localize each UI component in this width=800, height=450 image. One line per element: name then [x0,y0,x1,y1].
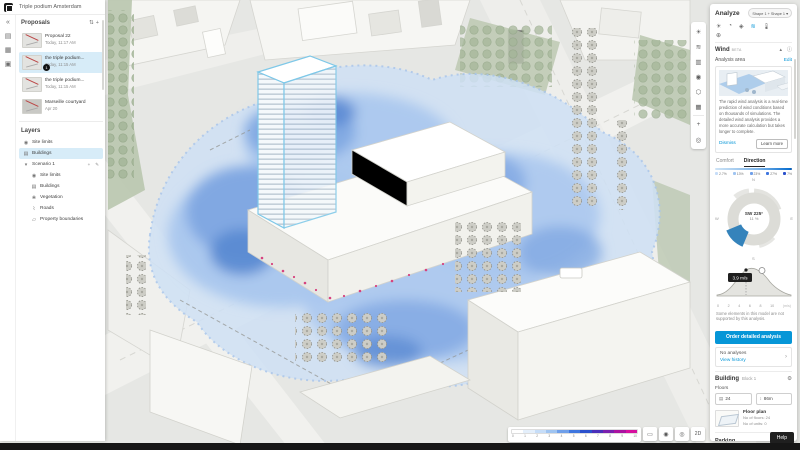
wind-rose[interactable]: N E S W SW 225° 11 % [715,177,793,261]
floor-plan-row[interactable]: Floor plan No of floors: 24 No of units:… [715,410,792,427]
eye-icon[interactable]: ◉ [31,173,37,179]
panel-scrollbar[interactable] [794,59,796,139]
wind-card-description: The rapid wind analysis is a real-time p… [719,99,788,136]
proposals-header: Proposals [21,20,50,26]
chevron-right-icon[interactable]: › [785,354,787,360]
chip: 27% [766,172,777,176]
proposal-time: Today, 11:15 AM [45,84,84,89]
proposal-time: Apr 20 [45,106,86,111]
layer-label: Scenario 1 [32,162,55,167]
visibility-tool-icon[interactable]: ◉ [691,69,706,84]
tab-comfort[interactable]: Comfort [716,158,734,167]
chip: 13% [733,172,744,176]
order-detailed-analysis-button[interactable]: Order detailed analysis [715,331,792,344]
layer-label: Site limits [40,173,61,178]
building-height-field[interactable]: ↕ 86m [756,393,793,405]
edit-layer-icon[interactable]: ✎ [93,162,99,168]
layer-child-roads[interactable]: ⌇ Roads [19,203,103,214]
learn-more-button[interactable]: Learn more [756,139,788,149]
unsupported-note: Some elements in this model are not supp… [716,311,791,323]
wind-info-card: The rapid wind analysis is a real-time p… [715,66,792,153]
floor-plan-floors: No of floors: 24 [743,415,770,421]
info-icon[interactable]: ⓘ [784,46,792,53]
stats-tool-icon[interactable]: ▥ [691,54,706,69]
building-section-title: Building [715,376,739,382]
proposal-title: the triple podium... [45,56,84,61]
add-layer-icon[interactable]: + [86,162,91,167]
layer-child-vegetation[interactable]: ❀ Vegetation [19,192,103,203]
proposal-item-2-selected[interactable]: the triple podium... Today, 11:15 AM 1 [19,52,103,73]
wind-tool-icon[interactable]: ≋ [691,39,706,54]
wind-speed-histogram[interactable]: 3.9 m/s 0 2 4 6 8 10 (m/s) [715,261,793,308]
section-tool-icon[interactable]: ▦ [691,99,706,114]
floors-icon: ▤ [719,396,723,402]
sun-analysis-icon[interactable]: ☀ [716,23,721,30]
tab-direction[interactable]: Direction [744,158,766,167]
canvas-view-buttons: ▭ ◉ ◎ 2D [643,427,705,442]
operational-energy-icon[interactable]: ⊕ [716,32,721,39]
app-logo-icon[interactable] [4,3,13,12]
eye-icon[interactable]: ◉ [23,140,29,146]
boundary-icon: ▱ [31,217,37,223]
buildings-icon: ▤ [31,184,37,190]
left-sidebar: Triple podium Amsterdam « ▤ ▦ ▣ Proposal… [0,0,105,441]
zoom-in-icon[interactable]: + [691,117,706,132]
zoom-button[interactable]: ◎ [675,427,689,441]
wind-section-title: Wind [715,47,730,53]
proposal-time: Today, 11:15 AM [45,62,84,67]
proposal-thumbnail [22,33,42,48]
visibility-button[interactable]: ◉ [659,427,673,441]
buildings-icon: ▤ [23,151,29,157]
compass-e: E [790,216,793,221]
app-root: Triple podium Amsterdam « ▤ ▦ ▣ Proposal… [0,0,800,450]
edit-area-link[interactable]: Edit [784,58,792,63]
proposal-thumbnail [22,55,42,70]
collapse-section-icon[interactable]: ▴ [776,47,782,53]
proposal-time: Today, 11:17 AM [45,40,76,45]
wind-card-thumbnail [719,70,788,96]
compass-w: W [715,216,719,221]
frame-select-button[interactable]: ▭ [643,427,657,441]
proposal-thumbnail [22,77,42,92]
layer-label: Roads [40,206,54,211]
layer-label: Buildings [32,151,51,156]
proposal-item-4[interactable]: Marseille courtyard Apr 20 [19,96,103,117]
project-title: Triple podium Amsterdam [19,4,81,10]
wind-analysis-icon[interactable]: ≋ [751,23,756,30]
proposal-item-1[interactable]: Proposal 22 Today, 11:17 AM [19,30,103,51]
layer-child-buildings[interactable]: ▤ Buildings [19,181,103,192]
height-value: 86m [764,396,773,401]
proposal-title: the triple podium... [45,78,84,83]
layer-label: Property boundaries [40,217,83,222]
histogram-x-axis: 0 2 4 6 8 10 (m/s) [715,304,793,308]
sidebar-scrollbar[interactable] [102,20,104,90]
analyze-panel: Analyze Shape 1 + Shape 1 ▾ ☀ ◔ ◈ ≋ 🌡 ⊕ … [710,4,797,441]
layer-scenario-1[interactable]: ▾ Scenario 1 + ✎ [19,159,103,170]
wind-beta-badge: BETA [732,48,742,52]
floors-label: Floors [715,386,792,391]
compass-icon[interactable]: ◎ [691,132,706,147]
proposal-item-3[interactable]: the triple podium... Today, 11:15 AM [19,74,103,95]
bottom-bar [0,443,800,450]
sort-icon[interactable]: ⇅ [89,20,96,26]
layer-site-limits[interactable]: ◉ Site limits [19,137,103,148]
sidebar-header: Triple podium Amsterdam [0,0,105,15]
chevron-down-icon[interactable]: ▾ [23,162,29,168]
floors-value: 24 [725,396,730,401]
chip: 7% [783,172,792,176]
layer-buildings[interactable]: ▤ Buildings [19,148,103,159]
collaborator-badge: 1 [43,64,50,71]
panel-title: Analyze [715,10,740,17]
speed-tooltip: 3.9 m/s [732,275,748,280]
floors-count-field[interactable]: ▤ 24 [715,393,752,405]
floor-plan-units: No of units: 0 [743,421,770,427]
dismiss-link[interactable]: Dismiss [719,141,736,146]
view-toolbar: ☀ ≋ ▥ ◉ ⬡ ▦ + ◎ [691,22,706,149]
vegetation-icon: ❀ [31,195,37,201]
direction-chips: 2.7% 13% 23% 27% 7% [715,172,792,176]
add-proposal-icon[interactable]: + [96,20,101,26]
compass-n: N [752,177,755,182]
microclimate-analysis-icon[interactable]: 🌡 [763,23,771,30]
scope-selector[interactable]: Shape 1 + Shape 1 ▾ [748,8,792,18]
daylight-analysis-icon[interactable]: ◔ [728,23,732,30]
legend-ticks: 01 23 45 67 89 10 [511,434,638,438]
wind-speed-legend: 01 23 45 67 89 10 [508,427,641,442]
2d-view-button[interactable]: 2D [691,427,705,441]
layer-label: Site limits [32,140,53,145]
building-name: Block 1 [742,376,756,381]
chip: 2.7% [715,172,727,176]
sun-study-icon[interactable]: ☀ [691,24,706,39]
analysis-area-label: Analysis area [715,57,745,63]
proposal-thumbnail [22,99,42,114]
proposal-title: Marseille courtyard [45,100,86,105]
view-history-link[interactable]: View history [720,358,746,363]
floor-plan-thumbnail [715,410,739,427]
model-tool-icon[interactable]: ⬡ [691,84,706,99]
city-3d-view [0,0,800,450]
no-analyses-label: No analyses [720,351,746,356]
layer-child-site-limits[interactable]: ◉ Site limits [19,170,103,181]
sidebar-rail: « ▤ ▦ ▣ [0,15,16,441]
layer-child-property-boundaries[interactable]: ▱ Property boundaries [19,214,103,225]
layers-panel-icon[interactable]: ▦ [0,43,16,57]
analysis-history-card[interactable]: No analyses View history › [715,347,792,367]
sidebar-content: Proposals ⇅+ Proposal 22 Today, 11:17 AM… [17,15,105,441]
collapse-sidebar-icon[interactable]: « [0,15,16,29]
noise-analysis-icon[interactable]: ◈ [739,23,744,30]
layers-header: Layers [21,128,40,134]
layer-label: Vegetation [40,195,63,200]
layer-label: Buildings [40,184,59,189]
analysis-progress-bar [715,168,792,170]
gear-icon[interactable]: ⚙ [787,376,792,382]
chip: 23% [750,172,761,176]
library-panel-icon[interactable]: ▣ [0,57,16,71]
proposal-title: Proposal 22 [45,34,76,39]
map-canvas[interactable] [0,0,800,450]
height-icon: ↕ [760,396,762,401]
roads-icon: ⌇ [31,206,37,212]
proposals-panel-icon[interactable]: ▤ [0,29,16,43]
